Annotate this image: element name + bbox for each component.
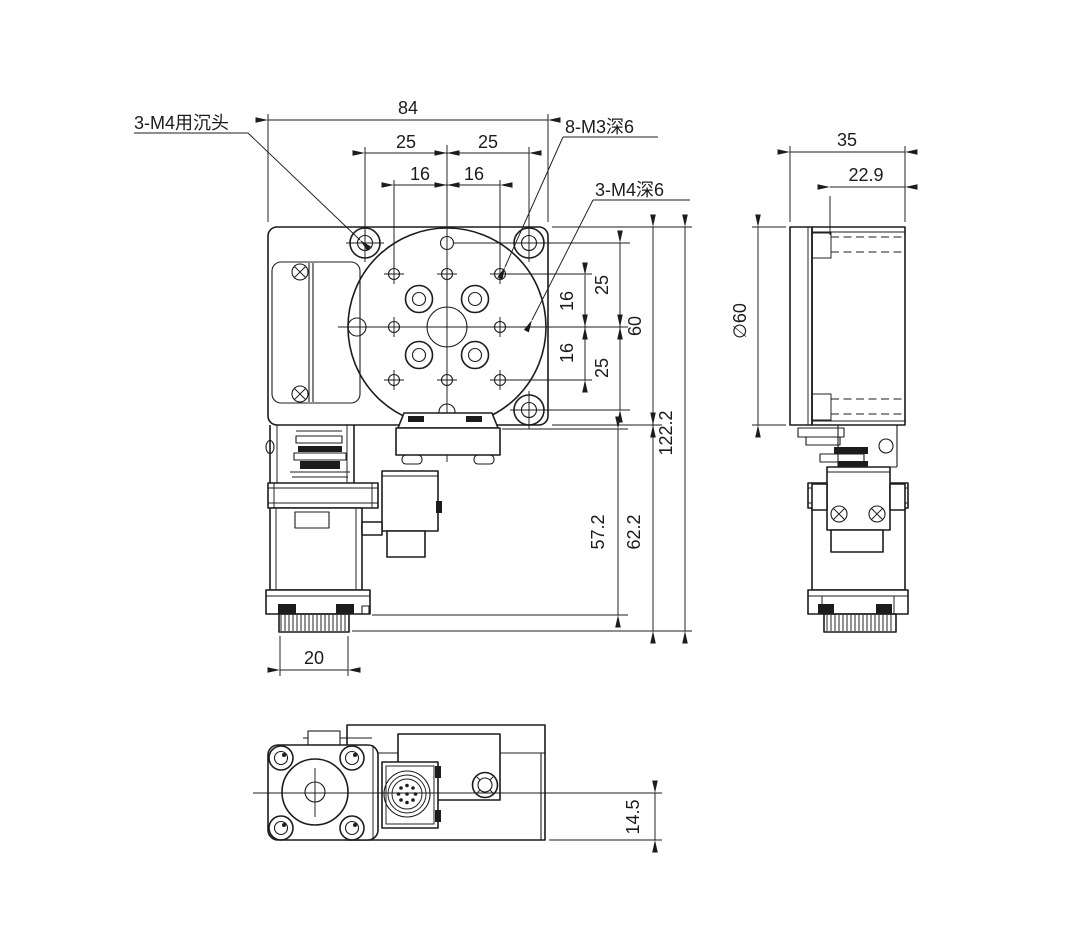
dim-84: 84 <box>398 98 418 118</box>
front-support-block <box>396 413 500 464</box>
side-view: 35 22.9 ∅60 <box>730 130 908 632</box>
bottom-connector <box>382 762 441 828</box>
side-front-plate <box>790 227 812 425</box>
bottom-view: 14.5 <box>253 725 662 840</box>
dim-25-bottom: 25 <box>592 358 612 378</box>
adjust-knob <box>279 614 349 632</box>
connector-pins <box>397 784 418 805</box>
dim-62-2: 62.2 <box>624 514 644 549</box>
front-view <box>266 145 628 632</box>
motor-flange <box>268 483 378 508</box>
front-side-panel <box>272 262 360 403</box>
base-screw-icon <box>473 773 498 798</box>
motor-body <box>270 508 362 590</box>
side-body <box>812 227 905 425</box>
dim-20: 20 <box>304 648 324 668</box>
front-base-plate <box>268 227 548 425</box>
dim-57-2: 57.2 <box>588 514 608 549</box>
bottom-motor-face <box>268 745 378 840</box>
dim-25-top: 25 <box>592 275 612 295</box>
dim-60: 60 <box>625 316 645 336</box>
bottom-dimensions: 14.5 <box>549 793 662 840</box>
dim-16-bottom: 16 <box>557 343 577 363</box>
dim-25-left: 25 <box>396 132 416 152</box>
dim-16-right: 16 <box>464 164 484 184</box>
dim-122-2: 122.2 <box>656 410 676 455</box>
side-dimensions: 35 22.9 ∅60 <box>730 130 905 425</box>
technical-drawing: 84 25 25 16 16 16 25 16 25 60 122.2 57.2… <box>0 0 1076 936</box>
dim-14-5: 14.5 <box>623 799 643 834</box>
side-hidden-holes <box>831 237 903 414</box>
dim-25-right: 25 <box>478 132 498 152</box>
dim-dia-60: ∅60 <box>730 303 750 339</box>
side-motor-assembly <box>808 467 908 632</box>
dim-35: 35 <box>837 130 857 150</box>
drawing-sheet: 84 25 25 16 16 16 25 16 25 60 122.2 57.2… <box>0 0 1076 936</box>
adjust-knob <box>824 614 896 632</box>
dim-16-top: 16 <box>557 291 577 311</box>
callout-counterbore-label: 3-M4用沉头 <box>134 113 229 133</box>
callout-m3-label: 8-M3深6 <box>565 117 634 137</box>
dim-22-9: 22.9 <box>848 165 883 185</box>
panel-screw-icon <box>292 386 308 402</box>
side-bracket <box>798 425 897 467</box>
dim-16-left: 16 <box>410 164 430 184</box>
panel-screw-icon <box>292 264 308 280</box>
callout-m4-label: 3-M4深6 <box>595 180 664 200</box>
